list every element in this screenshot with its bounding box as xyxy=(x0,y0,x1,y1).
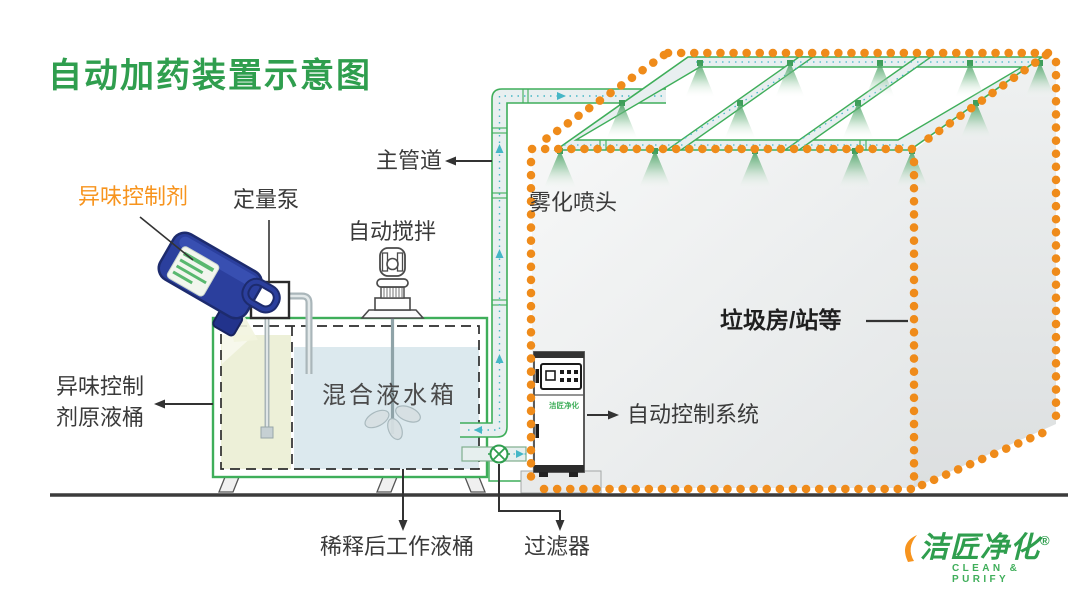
page-title: 自动加药装置示意图 xyxy=(48,58,372,95)
label-metering-pump: 定量泵 xyxy=(233,188,299,212)
brand-name: 洁匠净化 xyxy=(920,532,1040,564)
cabinet-logo: 洁匠净化 xyxy=(543,400,585,411)
cabinet-bottom-strip xyxy=(534,465,584,472)
display-screen xyxy=(546,371,555,380)
mixer-motor-icon xyxy=(362,248,423,318)
arrowhead-down-icon xyxy=(399,520,408,531)
label-odor-agent: 异味控制剂 xyxy=(78,185,188,209)
cabinet-foot xyxy=(569,472,578,477)
label-control-system: 自动控制系统 xyxy=(627,403,759,427)
cabinet-hinge xyxy=(536,369,540,383)
label-raw-drum: 异味控制 剂原液桶 xyxy=(56,371,144,433)
tank-leg xyxy=(377,477,397,492)
arrowhead-left-icon xyxy=(445,157,456,166)
label-raw-drum-line2: 剂原液桶 xyxy=(56,402,144,433)
cabinet-top-strip xyxy=(534,352,584,358)
foot-valve xyxy=(261,427,273,438)
label-fog-nozzles: 雾化喷头 xyxy=(529,191,617,215)
arrowhead-left-icon xyxy=(154,400,165,409)
label-raw-drum-line1: 异味控制 xyxy=(56,371,144,402)
brand-swoosh-icon xyxy=(905,535,917,562)
label-filter: 过滤器 xyxy=(524,535,590,559)
label-main-pipe: 主管道 xyxy=(376,149,442,173)
brand-tagline: CLEAN & PURIFY xyxy=(952,563,1080,585)
label-auto-stir: 自动搅拌 xyxy=(348,220,436,244)
cabinet-handle xyxy=(536,424,540,438)
cabinet-foot xyxy=(539,472,548,477)
arrowhead-down-icon xyxy=(556,520,565,531)
label-diluted-drum: 稀释后工作液桶 xyxy=(320,535,474,559)
registered-mark: ® xyxy=(1040,533,1051,548)
label-garbage-room: 垃圾房/站等 xyxy=(720,308,841,333)
tank-leg xyxy=(219,477,239,492)
schematic-page: 自动加药装置示意图 异味控制剂 定量泵 自动搅拌 主管道 雾化喷头 垃圾房/站等… xyxy=(0,0,1080,610)
brand-logo: 洁匠净化® xyxy=(920,524,1051,566)
label-mixing-tank: 混合液水箱 xyxy=(322,383,457,409)
tank-leg xyxy=(465,477,485,492)
